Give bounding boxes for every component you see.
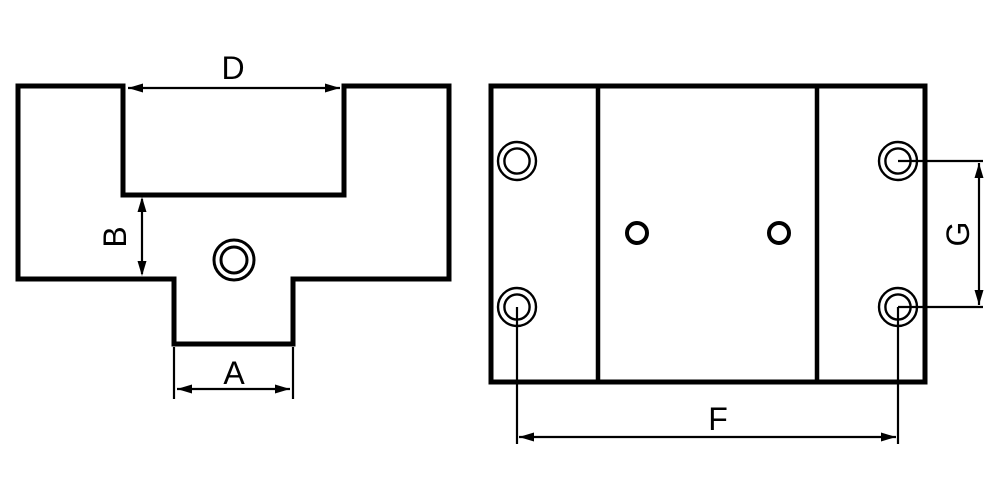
arrow-right-icon	[325, 84, 340, 93]
dimension-d-label: D	[221, 50, 244, 86]
arrow-down-icon	[975, 290, 984, 305]
dimension-g-label: G	[940, 222, 976, 247]
arrow-left-icon	[519, 433, 534, 442]
top-view-outline	[491, 86, 925, 382]
front-view: D B A	[18, 50, 449, 399]
arrow-left-icon	[128, 84, 143, 93]
dimension-f-label: F	[708, 401, 728, 437]
arrow-up-icon	[975, 163, 984, 178]
front-view-outline	[18, 86, 449, 344]
dimension-b-label: B	[97, 226, 133, 247]
top-view: G F	[491, 86, 984, 444]
dimension-a: A	[174, 347, 293, 399]
two-view-technical-drawing: D B A	[0, 0, 1000, 500]
dimension-d: D	[128, 50, 340, 93]
arrow-right-icon	[881, 433, 896, 442]
drawing-canvas: D B A	[0, 0, 1000, 500]
arrow-left-icon	[177, 385, 192, 394]
arrow-right-icon	[275, 385, 290, 394]
dimension-a-label: A	[223, 355, 245, 391]
